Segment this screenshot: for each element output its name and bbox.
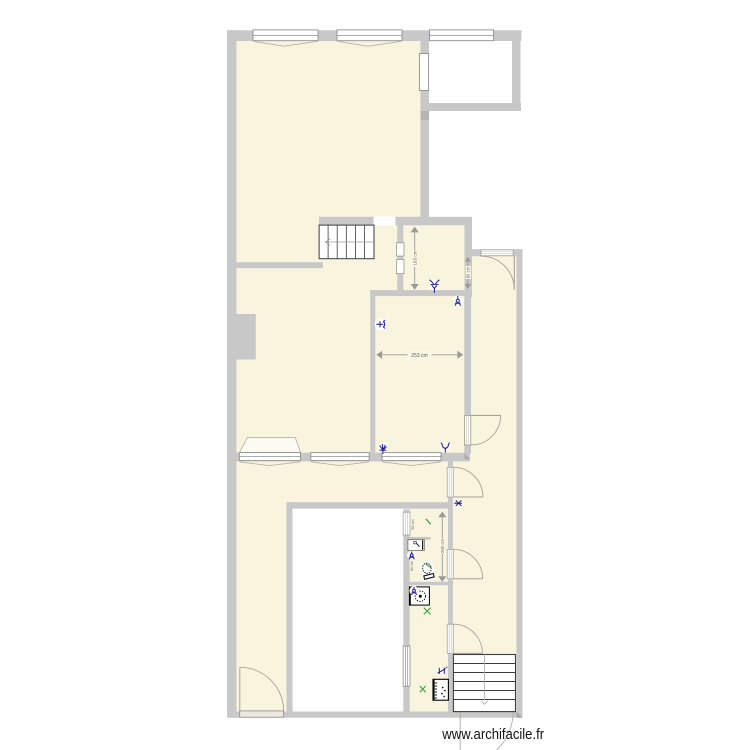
- svg-text:183 cm: 183 cm: [413, 250, 418, 265]
- svg-text:86 cm: 86 cm: [466, 266, 471, 278]
- svg-text:60 cm: 60 cm: [410, 561, 414, 571]
- svg-text:63 cm: 63 cm: [411, 519, 415, 529]
- svg-text:253 cm: 253 cm: [411, 353, 427, 359]
- svg-text:200 cm: 200 cm: [440, 538, 445, 553]
- svg-text:www.archifacile.fr: www.archifacile.fr: [441, 726, 544, 743]
